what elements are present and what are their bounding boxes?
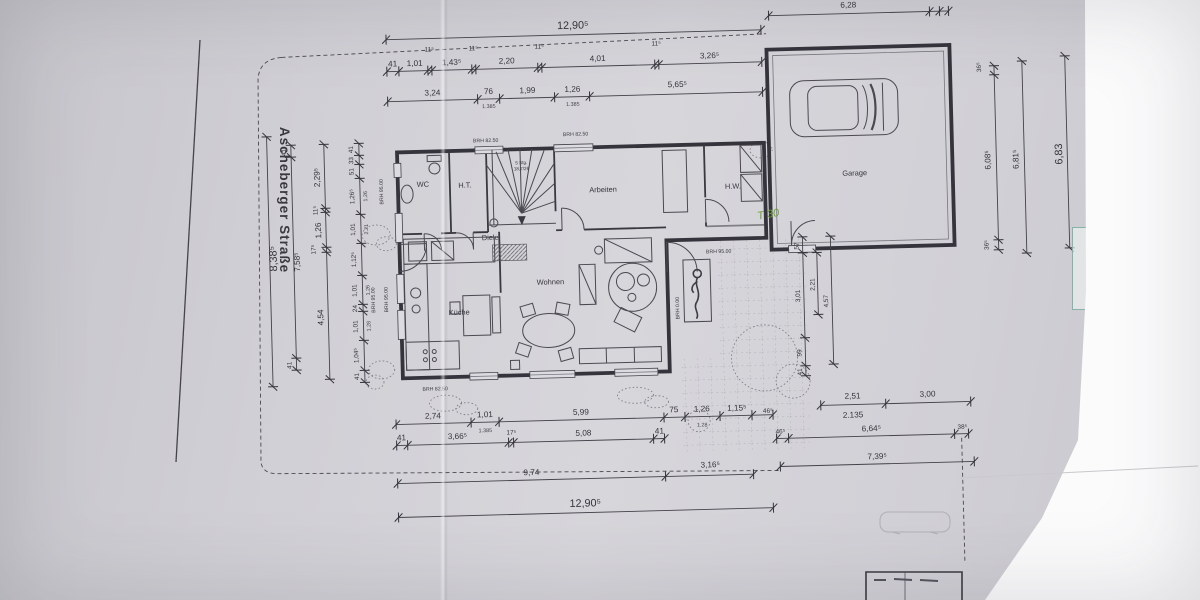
scanned-floor-plan-photo: Ascheberger Straße <box>0 0 1200 600</box>
scan-white-edge <box>0 0 1200 600</box>
